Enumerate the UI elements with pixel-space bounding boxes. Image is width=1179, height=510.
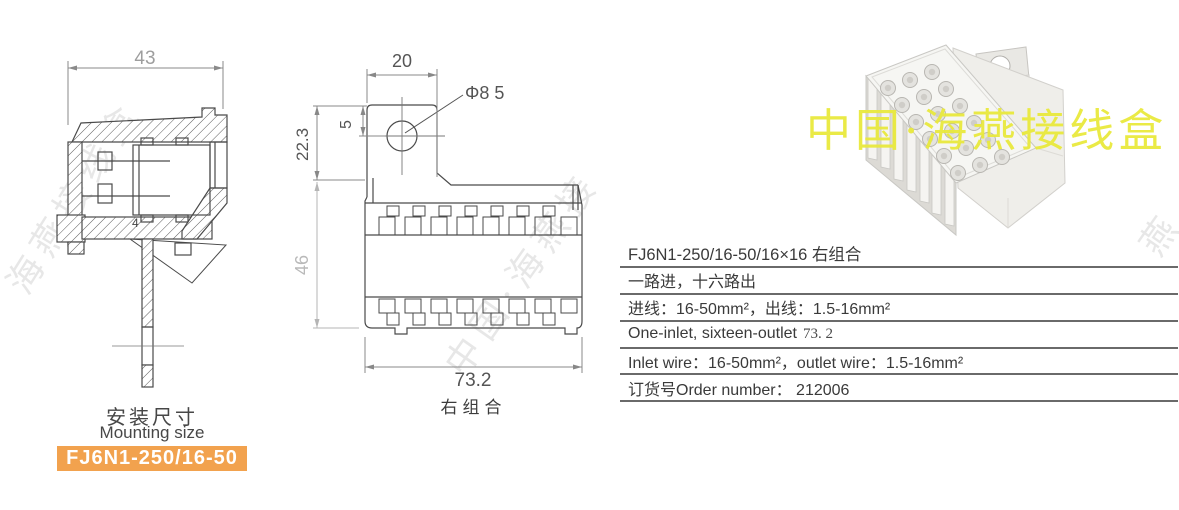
spec-row-wire-cn: 进线：16-50mm²，出线：1.5-16mm² xyxy=(620,295,1178,322)
dim-20-arrow-right xyxy=(428,73,437,78)
spec-row-model: FJ6N1-250/16-50/16×16 右组合 xyxy=(620,241,1178,268)
section-inner-label: 4 xyxy=(132,216,139,230)
part-outline xyxy=(365,105,582,334)
right-combination-drawing: Φ8 5 20 5 22.3 xyxy=(295,45,605,435)
spec-row-ways-cn: 一路进，十六路出 xyxy=(620,268,1178,295)
photo-watermark: 中国·海燕接线盒 xyxy=(806,94,1167,159)
spec-row-wire-cn-text: 进线：16-50mm²，出线：1.5-16mm² xyxy=(628,295,890,319)
dim-46-lines xyxy=(313,182,359,328)
dim-43-arrow-left xyxy=(68,66,77,71)
dim-43-lines xyxy=(68,61,223,125)
dim-73-2-label: 73.2 xyxy=(455,370,492,391)
dim-20-arrow-left xyxy=(367,73,376,78)
dim-22-3-lines xyxy=(313,106,365,180)
dim-22-3-arrow-top xyxy=(315,106,320,115)
dim-22-3-label: 22.3 xyxy=(295,128,312,161)
spec-row-wire-en-text: Inlet wire：16-50mm²，outlet wire：1.5-16mm… xyxy=(628,349,963,373)
dim-73-2-lines xyxy=(365,337,582,373)
dim-43-label: 43 xyxy=(134,48,155,69)
spec-row-order-number-text: 订货号Order number： 212006 xyxy=(628,376,849,400)
dim-73-2-arrow-left xyxy=(365,365,374,370)
spec-row-ways-en-text: One-inlet, sixteen-outlet xyxy=(628,325,797,343)
mounting-size-caption-en: Mounting size xyxy=(47,423,257,443)
section-outline xyxy=(57,108,227,387)
dim-hole-label: Φ8 5 xyxy=(465,83,504,103)
model-number-badge: FJ6N1-250/16-50 xyxy=(57,446,247,471)
dim-46-label: 46 xyxy=(295,255,312,275)
dim-5-arrow-bottom xyxy=(361,127,366,136)
spec-row-ways-en-extra: 73. 2 xyxy=(803,326,833,343)
dim-43-arrow-right xyxy=(214,66,223,71)
right-combination-caption: 右组合 xyxy=(365,393,582,418)
spec-row-order-number: 订货号Order number： 212006 xyxy=(620,375,1178,402)
dim-5-arrow-top xyxy=(361,106,366,115)
dim-73-2-arrow-right xyxy=(573,365,582,370)
dim-5-label: 5 xyxy=(338,120,355,129)
dim-22-3-arrow-bottom xyxy=(315,171,320,180)
catalog-page: 海燕接线盒 中国·海燕接 燕 43 xyxy=(0,0,1179,510)
spec-row-model-text: FJ6N1-250/16-50/16×16 右组合 xyxy=(628,241,861,265)
spec-row-wire-en: Inlet wire：16-50mm²，outlet wire：1.5-16mm… xyxy=(620,349,1178,376)
dim-46-arrow-bottom xyxy=(315,319,320,328)
hole-leader-line xyxy=(405,95,463,133)
dim-46-arrow-top xyxy=(315,182,320,191)
dim-20-label: 20 xyxy=(392,51,412,71)
spec-row-ways-cn-text: 一路进，十六路出 xyxy=(628,268,756,292)
hole-centerlines xyxy=(385,97,445,175)
spec-row-ways-en: One-inlet, sixteen-outlet 73. 2 xyxy=(620,322,1178,349)
spec-table: FJ6N1-250/16-50/16×16 右组合 一路进，十六路出 进线：16… xyxy=(620,241,1178,402)
